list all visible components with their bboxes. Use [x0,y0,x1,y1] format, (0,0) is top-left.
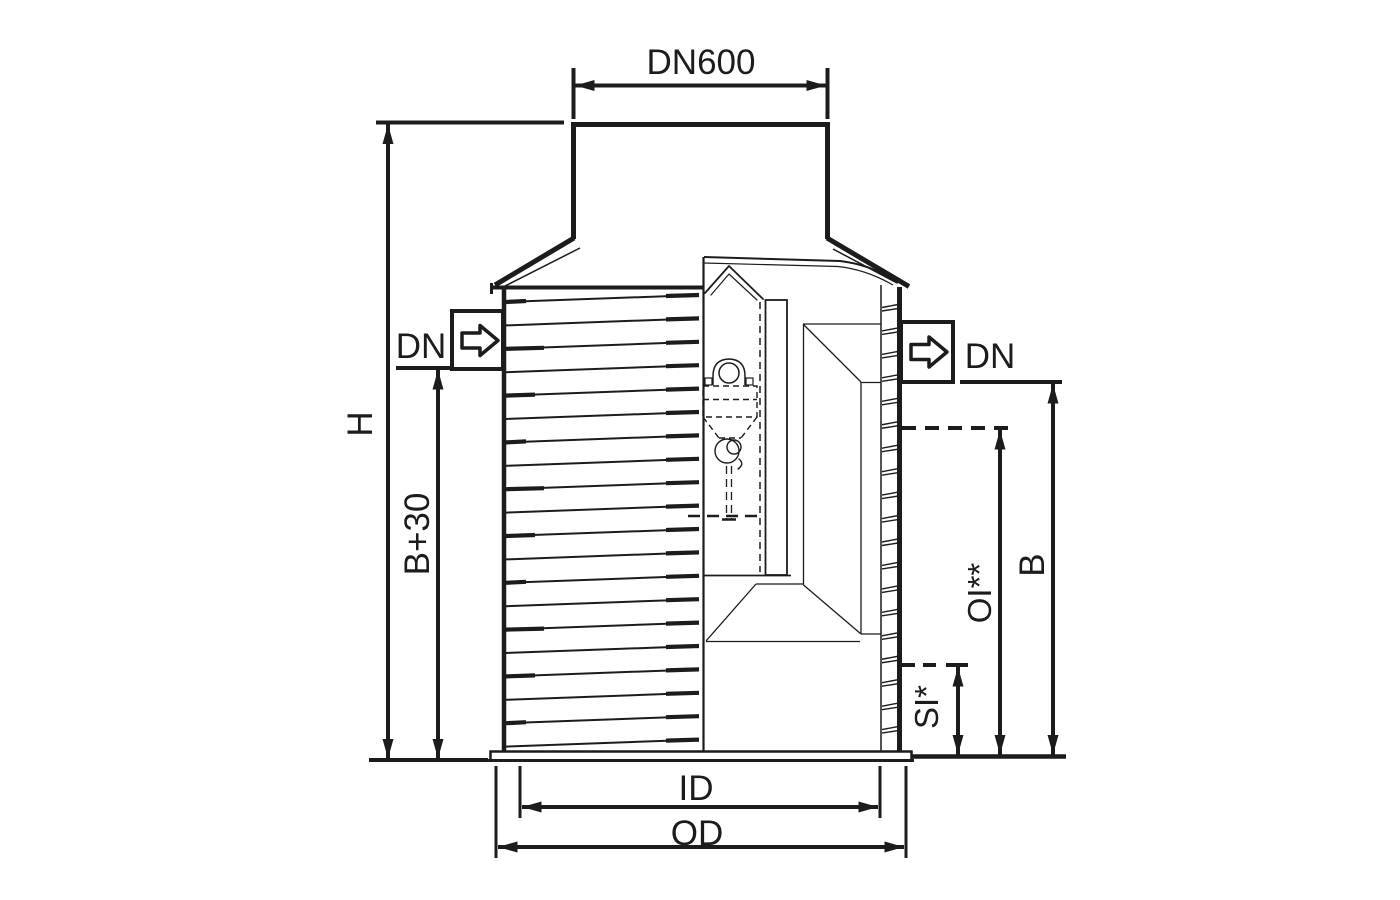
wall-rib-line [882,426,898,429]
coalescer-bg [766,300,788,575]
h-label: H [341,411,380,436]
corrugation-line-end [666,435,699,436]
corrugation-line-end [666,693,699,694]
float-funnel [703,417,757,438]
dim-b30: B+30 [396,368,453,759]
wall-rib-line [882,332,898,335]
wall-rib-line [882,496,898,499]
wall-rib-line [882,566,898,569]
corrugation-line-end [666,482,699,483]
si-label: SI* [908,685,945,729]
wall-rib-line [882,355,898,358]
wall-rib-line [882,516,898,519]
cone-inner-left [505,248,580,286]
wall-rib-line [882,539,898,542]
dim-id: ID [520,766,880,818]
wall-rib-line [882,469,898,472]
corrugation-line-end [666,342,699,343]
technical-drawing-page: DN DN DN600 H B+30 B OI** SI* [0,0,1400,900]
corrugation-line-start [506,441,526,442]
corrugation-line-start [506,582,526,583]
internals-section [688,257,898,751]
wall-rib-line [882,492,898,495]
wall-rib-line [882,684,898,687]
corrugation-line-end [666,529,699,530]
corrugation-line-start [506,535,535,536]
wall-rib-line [882,609,898,612]
wall-rib-line [882,543,898,546]
corrugation-line-start [506,629,544,630]
wall-rib-line [882,375,898,378]
dn600-label: DN600 [647,43,756,82]
corrugation-line-end [666,365,699,366]
float-shoulder-left [705,378,712,385]
corrugation-line-end [666,389,699,390]
wall-rib-line [882,351,898,354]
corrugation-line-end [666,459,699,460]
base-plate [488,752,914,761]
float-body [703,386,757,417]
corrugation-line-start [506,348,544,349]
wall-rib-line [882,613,898,616]
wall-rib-line [882,422,898,425]
wall-rib-line [882,703,898,706]
corrugation-line-end [666,716,699,717]
tank-lid [491,238,909,294]
wall-rib-line [882,328,898,331]
corrugation-line-end [666,646,699,647]
wall-rib-line [882,707,898,710]
wall-rib-line [882,445,898,448]
wall-rib-line [882,305,898,308]
wall-rib-lines [882,305,898,734]
wall-rib-line [882,309,898,312]
od-label: OD [671,814,724,853]
wall-rib-line [882,660,898,663]
wall-rib-line [882,586,898,589]
b-label: B [1013,553,1052,576]
dim-si: SI* [902,665,968,755]
outlet-dn-label: DN [965,337,1016,376]
b30-label: B+30 [398,493,437,576]
wall-rib-line [882,520,898,523]
wall-rib-line [882,633,898,636]
separator-tank-drawing: DN DN DN600 H B+30 B OI** SI* [0,0,1400,900]
wall-rib-line [882,727,898,730]
cone-edge-right [827,238,909,287]
inlet-deflector-outer [705,266,763,299]
inlet-connection: DN [396,311,503,369]
corrugation-line-start [506,488,544,489]
tank-shell [504,285,900,751]
neck-outline [571,125,830,240]
cone-edge-left [495,238,574,285]
id-label: ID [679,769,714,808]
corrugation-line-end [666,740,699,741]
corrugation-line-start [506,675,535,676]
outlet-chamber-box [803,324,881,634]
inlet-dn-label: DN [396,327,447,366]
corrugation-line-end [666,295,699,296]
corrugation-line-end [666,599,699,600]
float-shoulder-right [746,378,753,385]
wall-rib-line [882,637,898,640]
wall-rib-line [882,562,898,565]
corrugation-line-end [666,412,699,413]
oi-label: OI** [961,563,998,624]
corrugation-line-end [666,318,699,319]
float-lift-ring [719,363,739,383]
tank-neck [571,125,830,240]
wall-rib-line [882,590,898,593]
corrugation-line-end [666,576,699,577]
float-shutoff-valve [688,359,758,520]
valve-hook [738,459,742,469]
corrugation-line-end [666,623,699,624]
corrugation-lines [506,295,699,747]
wall-rib-line [882,449,898,452]
corrugation-line-end [666,669,699,670]
wall-rib-line [882,473,898,476]
corrugation-line-end [666,506,699,507]
wall-rib-line [882,402,898,405]
corrugation-line-end [666,552,699,553]
valve-ball-outer [715,439,739,463]
corrugation-line-start [506,301,526,302]
corrugation-line-start [506,722,526,723]
wall-rib-line [882,398,898,401]
wall-rib-line [882,656,898,659]
outlet-connection: DN [901,322,1015,382]
dim-dn600: DN600 [574,43,828,119]
wall-rib-line [882,680,898,683]
wall-rib-line [882,379,898,382]
wall-rib-line [882,731,898,734]
corrugation-line-start [506,395,535,396]
